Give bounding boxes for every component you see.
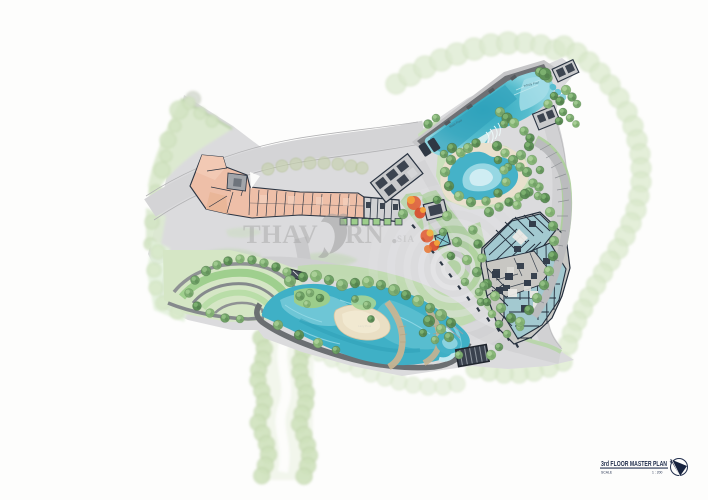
svg-text:1 : 200: 1 : 200 — [652, 471, 662, 475]
svg-text:RN: RN — [345, 219, 384, 249]
svg-text:SCALE: SCALE — [601, 471, 613, 475]
svg-text:SIA: SIA — [397, 234, 415, 244]
svg-text:THAV: THAV — [243, 219, 318, 249]
svg-text:3rd FLOOR MASTER PLAN: 3rd FLOOR MASTER PLAN — [601, 461, 667, 468]
